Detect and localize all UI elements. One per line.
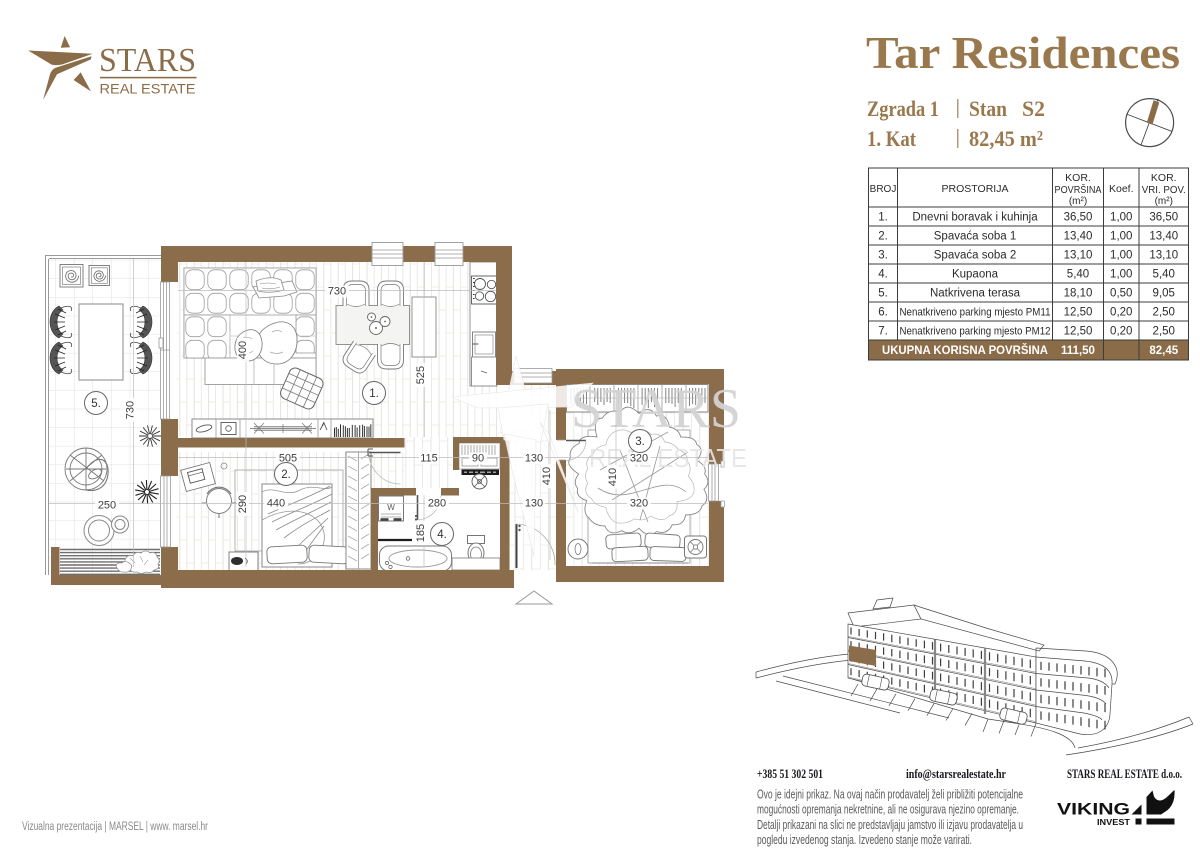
svg-text:(m²): (m²) (1155, 196, 1173, 207)
svg-text:PROSTORIJA: PROSTORIJA (942, 183, 1009, 195)
svg-text:STARS REAL ESTATE d.o.o.: STARS REAL ESTATE d.o.o. (1067, 767, 1182, 781)
svg-text:INVEST: INVEST (1097, 818, 1130, 827)
svg-text:82,45 m²: 82,45 m² (969, 126, 1043, 151)
svg-text:BROJ: BROJ (870, 184, 897, 195)
svg-text:5.: 5. (878, 288, 888, 300)
svg-text:12,50: 12,50 (1064, 326, 1093, 338)
svg-text:Dnevni boravak i kuhinja: Dnevni boravak i kuhinja (912, 212, 1038, 224)
svg-text:290: 290 (237, 495, 249, 513)
svg-text:111,50: 111,50 (1061, 345, 1095, 357)
svg-text:UKUPNA KORISNA POVRŠINA: UKUPNA KORISNA POVRŠINA (882, 344, 1048, 357)
svg-text:VRI. POV.: VRI. POV. (1142, 184, 1186, 196)
svg-text:info@starsrealestate.hr: info@starsrealestate.hr (906, 767, 1006, 781)
svg-text:POVRŠINA: POVRŠINA (1055, 183, 1102, 196)
svg-text:36,50: 36,50 (1064, 212, 1093, 224)
svg-text:5.: 5. (91, 398, 101, 410)
svg-text:2,50: 2,50 (1153, 326, 1175, 338)
svg-text:4.: 4. (878, 269, 888, 281)
svg-text:185: 185 (415, 524, 427, 542)
svg-text:36,50: 36,50 (1149, 212, 1178, 224)
svg-text:730: 730 (328, 286, 346, 298)
svg-text:13,10: 13,10 (1064, 250, 1093, 262)
svg-text:5,40: 5,40 (1153, 269, 1175, 281)
svg-text:Stan: Stan (969, 96, 1007, 121)
svg-text:1,00: 1,00 (1110, 250, 1132, 262)
svg-text:13,10: 13,10 (1149, 250, 1178, 262)
svg-text:90: 90 (472, 453, 484, 465)
svg-text:250: 250 (98, 500, 116, 512)
svg-text:4.: 4. (437, 529, 447, 541)
svg-text:130: 130 (525, 453, 543, 465)
svg-text:Nenatkriveno parking mjesto PM: Nenatkriveno parking mjesto PM11 (900, 307, 1051, 319)
svg-text:525: 525 (415, 366, 427, 384)
svg-text:KOR.: KOR. (1151, 172, 1177, 184)
svg-text:Detalji prikazani na slici ne: Detalji prikazani na slici ne predstavlj… (757, 817, 1023, 832)
svg-text:400: 400 (237, 341, 249, 359)
svg-text:115: 115 (420, 453, 438, 465)
svg-text:1.: 1. (878, 212, 888, 224)
svg-text:320: 320 (630, 453, 648, 465)
svg-text:12,50: 12,50 (1064, 307, 1093, 319)
svg-text:18,10: 18,10 (1064, 288, 1093, 300)
svg-text:0,20: 0,20 (1110, 326, 1132, 338)
svg-text:1,00: 1,00 (1110, 212, 1132, 224)
svg-text:KOR.: KOR. (1065, 172, 1091, 184)
svg-text:VIKING: VIKING (1057, 801, 1130, 819)
svg-text:13,40: 13,40 (1064, 231, 1093, 243)
svg-text:13,40: 13,40 (1149, 231, 1178, 243)
svg-text:2.: 2. (281, 469, 291, 481)
svg-text:410: 410 (541, 467, 553, 485)
svg-text:S2: S2 (1022, 96, 1045, 121)
svg-text:280: 280 (428, 498, 446, 510)
svg-text:mogućnosti opremanja nekretnin: mogućnosti opremanja nekretnine, ali ne … (757, 802, 1019, 817)
svg-text:2,50: 2,50 (1153, 307, 1175, 319)
svg-text:W: W (387, 503, 395, 512)
svg-text:1. Kat: 1. Kat (867, 126, 917, 151)
svg-text:7.: 7. (878, 326, 888, 338)
svg-text:STARS: STARS (99, 42, 196, 79)
svg-text:Zgrada 1: Zgrada 1 (867, 96, 939, 121)
svg-text:Tar Residences: Tar Residences (866, 27, 1180, 78)
svg-text:1.: 1. (369, 388, 379, 400)
svg-text:+385 51 302 501: +385 51 302 501 (757, 767, 823, 781)
svg-text:REAL ESTATE: REAL ESTATE (100, 82, 196, 97)
svg-text:Kupaona: Kupaona (952, 269, 999, 281)
svg-text:730: 730 (125, 401, 137, 419)
svg-text:Koef.: Koef. (1109, 183, 1134, 195)
svg-text:Spavaća soba 2: Spavaća soba 2 (934, 250, 1016, 262)
svg-text:Natkrivena terasa: Natkrivena terasa (930, 288, 1021, 300)
svg-text:130: 130 (525, 498, 543, 510)
svg-text:320: 320 (630, 498, 648, 510)
svg-text:(m²): (m²) (1069, 196, 1087, 207)
svg-text:pogledu izvedenog stanja. Izve: pogledu izvedenog stanja. Izvedeno stanj… (757, 832, 972, 847)
svg-text:Spavaća soba 1: Spavaća soba 1 (934, 231, 1016, 243)
svg-text:1,00: 1,00 (1110, 269, 1132, 281)
svg-text:82,45: 82,45 (1149, 345, 1178, 357)
svg-text:6.: 6. (878, 307, 888, 319)
svg-text:STARS: STARS (571, 378, 741, 440)
svg-text:3.: 3. (878, 250, 888, 262)
svg-text:Vizualna prezentacija | MARSEL: Vizualna prezentacija | MARSEL | www. ma… (22, 821, 208, 833)
svg-text:440: 440 (267, 498, 285, 510)
svg-text:5,40: 5,40 (1067, 269, 1089, 281)
svg-text:3.: 3. (635, 436, 645, 448)
svg-text:1,00: 1,00 (1110, 231, 1132, 243)
svg-text:0,50: 0,50 (1110, 288, 1132, 300)
svg-text:0,20: 0,20 (1110, 307, 1132, 319)
svg-text:9,05: 9,05 (1153, 288, 1175, 300)
svg-text:Ovo je idejni prikaz. Na ovaj: Ovo je idejni prikaz. Na ovaj način prod… (757, 787, 1023, 802)
svg-text:Nenatkriveno parking mjesto PM: Nenatkriveno parking mjesto PM12 (900, 326, 1051, 338)
svg-text:2.: 2. (878, 231, 888, 243)
svg-text:410: 410 (607, 468, 619, 486)
